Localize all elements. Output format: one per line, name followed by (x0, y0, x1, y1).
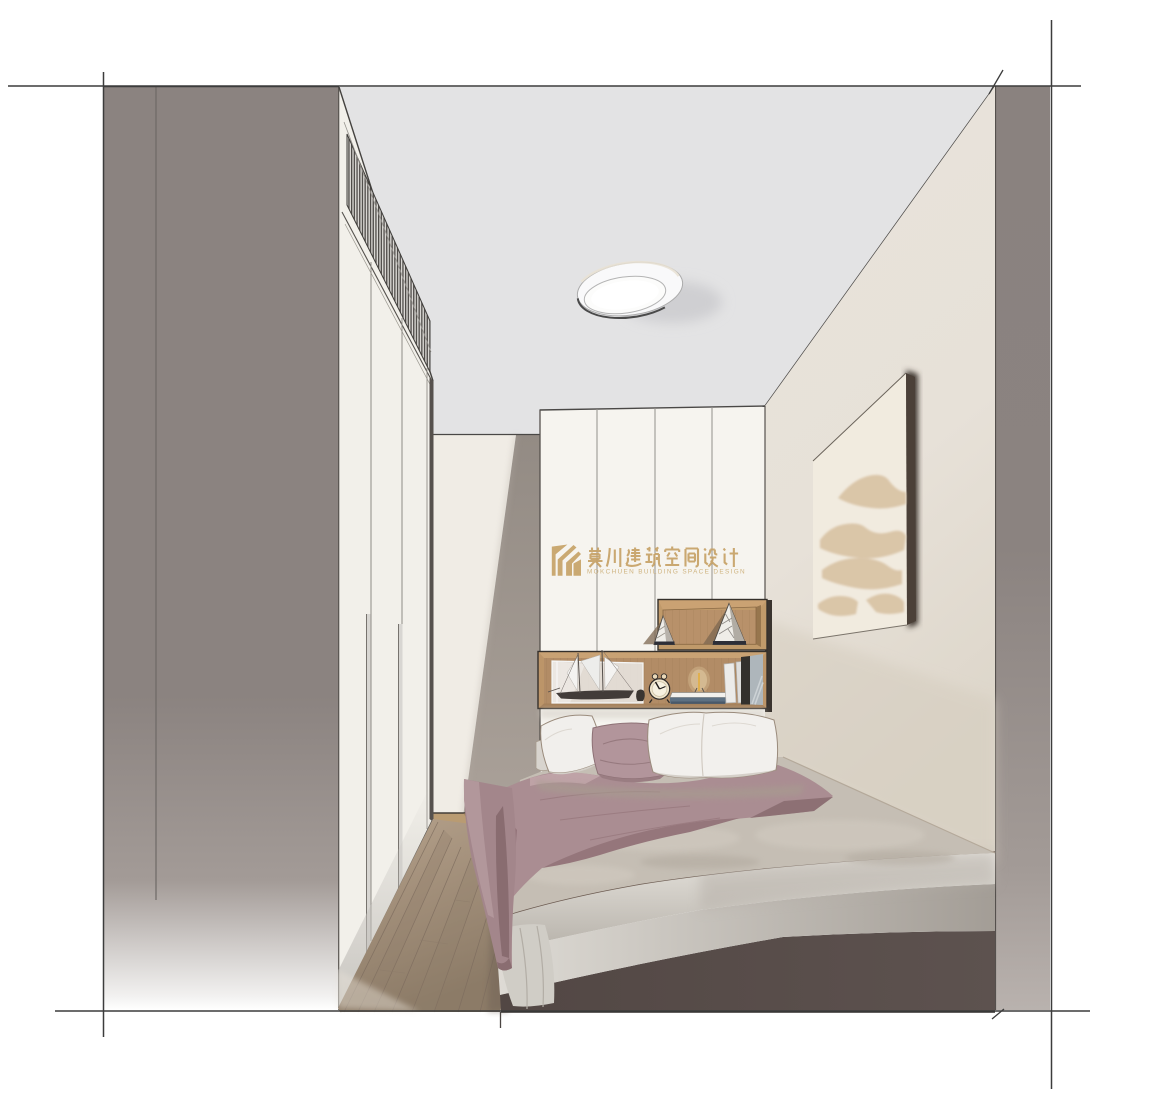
svg-text:MOKCHUEN BUILDING SPACE DESIGN: MOKCHUEN BUILDING SPACE DESIGN (587, 569, 746, 576)
